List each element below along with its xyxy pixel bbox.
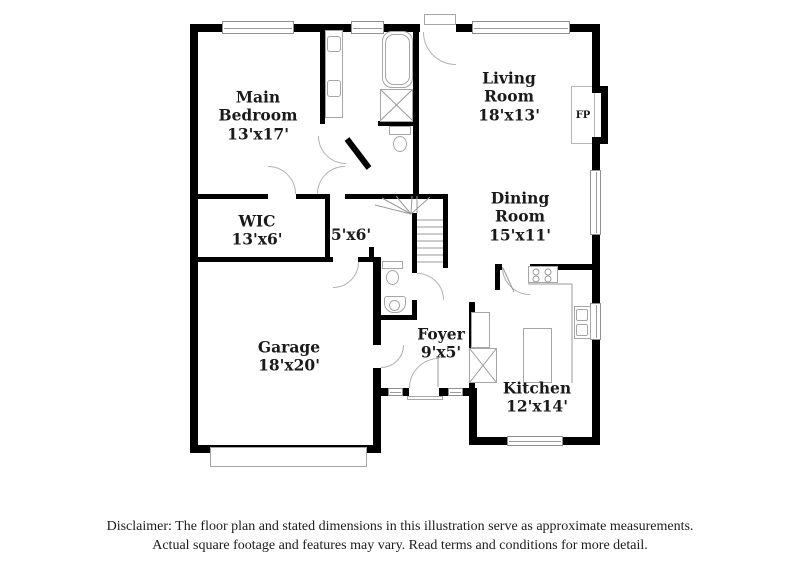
wall — [373, 368, 381, 453]
room-dims: 15'x11' — [475, 226, 565, 244]
disclaimer-line-1: Disclaimer: The floor plan and stated di… — [0, 518, 800, 537]
wall — [373, 257, 381, 345]
back-door-opening — [420, 24, 456, 32]
staircase — [375, 196, 443, 262]
fireplace: FP — [571, 86, 595, 144]
room-dims: 18'x20' — [234, 357, 344, 375]
kitchen-island — [523, 328, 552, 383]
wall — [190, 24, 198, 453]
window — [351, 21, 384, 34]
door-swing-arc — [417, 273, 444, 300]
window — [590, 170, 601, 235]
wall — [439, 388, 448, 396]
room-dims: 12'x14' — [482, 398, 592, 416]
room-label-living-room: Living Room 18'x13' — [469, 70, 549, 125]
disclaimer: Disclaimer: The floor plan and stated di… — [0, 518, 800, 555]
door-swing-arc — [502, 267, 530, 295]
room-label-garage: Garage 18'x20' — [234, 339, 344, 376]
half-bath-sink-bowl — [389, 300, 400, 311]
toilet-tank — [389, 126, 411, 135]
shower — [380, 89, 413, 122]
kitchen-sink-basin — [576, 324, 588, 336]
sidelight-window — [448, 388, 463, 396]
room-label-kitchen: Kitchen 12'x14' — [482, 380, 592, 417]
window — [507, 436, 563, 446]
room-dims: 13'x6' — [207, 231, 307, 249]
door-swing-arc — [409, 358, 439, 388]
room-dims: 13'x17' — [208, 125, 308, 143]
wall — [443, 194, 448, 268]
wall — [373, 315, 417, 320]
toilet-bowl — [386, 270, 399, 285]
door-swing-arc — [317, 166, 345, 194]
diagonal-wall — [347, 139, 369, 168]
door-swing-arc — [423, 32, 456, 65]
room-label-hall: 5'x6' — [331, 226, 371, 244]
room-name: Dining Room — [491, 189, 550, 226]
fireplace-label: FP — [576, 110, 591, 121]
room-name: Main Bedroom — [218, 88, 297, 125]
wall — [412, 300, 417, 315]
room-name: Living Room — [482, 69, 536, 106]
room-label-dining-room: Dining Room 15'x11' — [475, 190, 565, 245]
window — [222, 21, 294, 34]
wall — [495, 264, 500, 290]
room-name: Kitchen — [503, 379, 571, 398]
front-door-threshold — [407, 396, 443, 400]
kitchen-sink-basin — [576, 309, 588, 321]
disclaimer-line-2: Actual square footage and features may v… — [0, 537, 800, 556]
room-name: Garage — [258, 338, 320, 357]
room-label-wic: WIC 13'x6' — [207, 213, 307, 250]
bathtub-inner — [385, 34, 410, 85]
wall — [592, 24, 600, 92]
wall — [358, 257, 381, 262]
door-swing-arc — [318, 136, 346, 164]
wall — [369, 247, 374, 257]
wall — [403, 388, 409, 396]
wall — [373, 388, 388, 396]
toilet-tank — [382, 261, 403, 269]
wall — [413, 24, 419, 199]
sidelight-window — [388, 388, 403, 396]
room-label-foyer: Foyer 9'x5' — [401, 326, 481, 363]
wall — [325, 194, 330, 262]
floor-plan-page: FP — [0, 0, 800, 582]
room-name: Foyer — [417, 325, 465, 344]
wall — [198, 194, 268, 199]
room-dims: 18'x13' — [469, 106, 549, 124]
vanity-sink — [327, 36, 341, 52]
wall — [345, 194, 369, 199]
fireplace-wall — [601, 86, 608, 144]
fireplace-wall — [592, 137, 608, 144]
door-swing-arc — [333, 262, 359, 288]
stove — [528, 266, 558, 283]
room-dims: 9'x5' — [401, 344, 481, 362]
wall — [412, 213, 417, 273]
wall — [198, 257, 333, 262]
room-dims: 5'x6' — [331, 226, 371, 244]
toilet-bowl — [393, 136, 407, 152]
window — [590, 303, 601, 340]
door-swing-arc — [268, 166, 296, 194]
window — [472, 21, 570, 34]
room-name: WIC — [239, 212, 276, 231]
room-label-main-bedroom: Main Bedroom 13'x17' — [208, 89, 308, 144]
wall — [369, 194, 448, 199]
garage-door — [210, 447, 367, 467]
vanity-sink — [327, 80, 341, 97]
back-door-leaf — [424, 14, 456, 25]
